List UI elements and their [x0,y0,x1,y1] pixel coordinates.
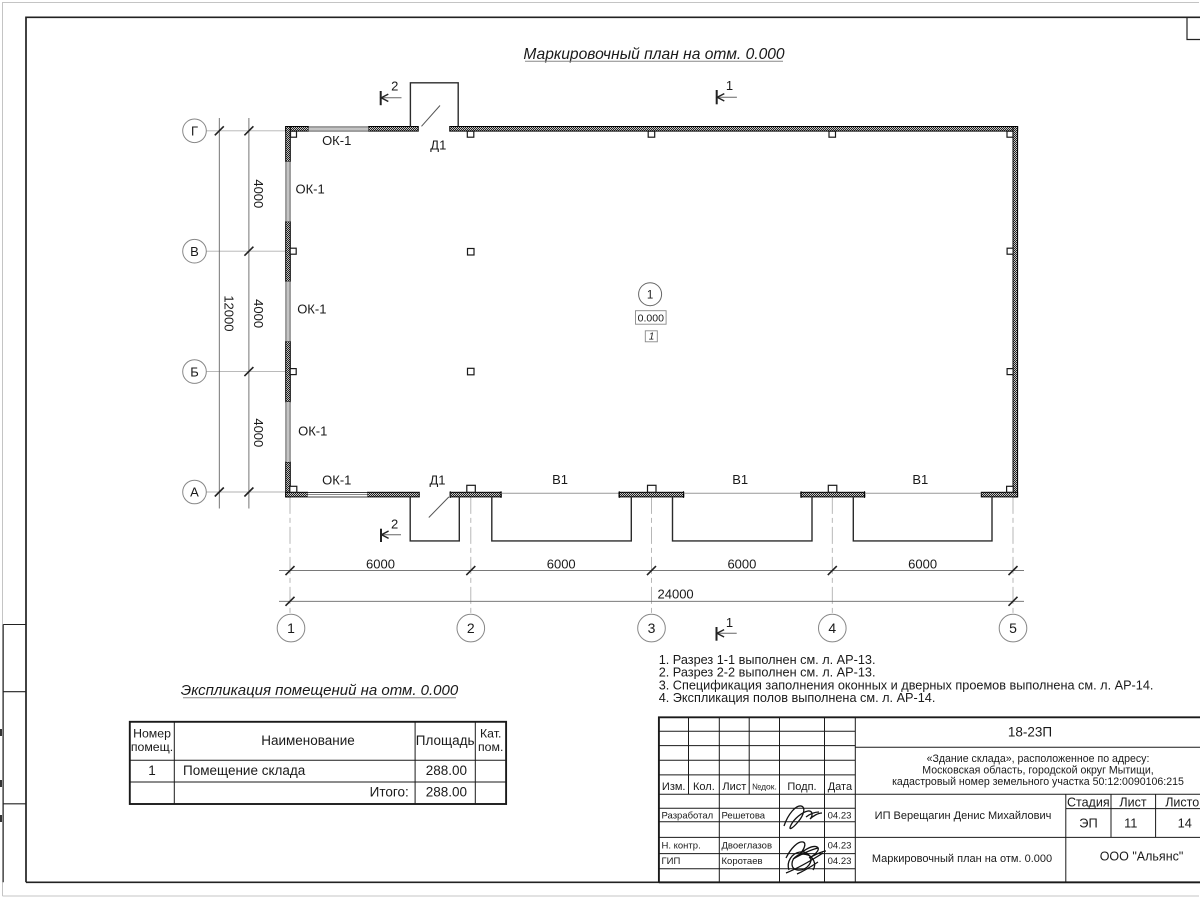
svg-text:04.23: 04.23 [828,856,852,867]
svg-text:«Здание склада», расположенное: «Здание склада», расположенное по адресу… [927,753,1150,765]
svg-text:1: 1 [649,332,655,343]
svg-text:пом.: пом. [478,740,503,754]
svg-text:Кат.: Кат. [480,727,501,741]
svg-text:2: 2 [391,79,398,94]
svg-text:Московская область, городской: Московская область, городской округ Мыти… [922,765,1153,777]
svg-text:1: 1 [148,763,156,778]
svg-text:3: 3 [648,620,656,636]
svg-text:4000: 4000 [251,299,266,328]
svg-text:ЭП: ЭП [1079,815,1097,830]
svg-text:04.23: 04.23 [828,811,852,822]
svg-text:В1: В1 [732,472,748,487]
svg-text:6000: 6000 [366,556,395,571]
svg-text:4000: 4000 [251,179,266,208]
svg-text:В1: В1 [912,472,928,487]
svg-text:24000: 24000 [658,587,694,602]
svg-text:№док.: №док. [752,781,777,791]
svg-text:Д1: Д1 [429,473,445,488]
svg-text:Лист: Лист [722,781,746,793]
svg-text:Листов: Листов [1165,795,1200,809]
svg-text:Д1: Д1 [430,138,446,153]
svg-text:ГИП: ГИП [662,856,681,867]
svg-text:6000: 6000 [727,556,756,571]
svg-text:Итого:: Итого: [370,785,409,800]
svg-text:Г: Г [191,124,198,139]
svg-text:Маркировочный план на отм. 0.0: Маркировочный план на отм. 0.000 [523,46,785,63]
svg-text:4: 4 [828,620,836,636]
svg-text:6000: 6000 [908,556,937,571]
svg-text:Дата: Дата [828,781,853,793]
svg-text:4000: 4000 [251,418,266,447]
svg-text:2: 2 [467,620,475,636]
svg-text:Изм.: Изм. [662,781,686,793]
svg-text:ОК-1: ОК-1 [322,473,351,488]
svg-text:5: 5 [1009,620,1017,636]
svg-text:288.00: 288.00 [426,785,467,800]
svg-text:кадастровый номер земельного у: кадастровый номер земельного участка 50:… [892,776,1184,788]
svg-text:0.000: 0.000 [638,312,664,324]
svg-text:ИП Верещагин Денис Михайлович: ИП Верещагин Денис Михайлович [875,810,1052,822]
svg-text:Площадь: Площадь [416,733,475,748]
svg-text:Б: Б [190,364,199,379]
svg-text:ООО "Альянс": ООО "Альянс" [1100,850,1184,864]
svg-text:Наименование: Наименование [261,733,355,748]
svg-text:Лист: Лист [1119,795,1146,809]
svg-text:Решетова: Решетова [722,811,766,822]
svg-text:4. Экспликация полов выполнена: 4. Экспликация полов выполнена см. л. АР… [659,691,936,705]
svg-text:Разработал: Разработал [662,811,714,822]
svg-text:1: 1 [647,290,653,302]
svg-text:288.00: 288.00 [426,763,467,778]
svg-text:Маркировочный план на отм. 0.0: Маркировочный план на отм. 0.000 [872,853,1052,865]
svg-text:ОК-1: ОК-1 [297,302,326,317]
svg-text:6000: 6000 [547,556,576,571]
svg-text:04.23: 04.23 [828,841,852,852]
svg-text:ОК-1: ОК-1 [298,424,327,439]
svg-text:А: А [190,485,199,500]
svg-text:2: 2 [391,516,398,531]
svg-text:1: 1 [726,78,733,93]
svg-text:Номер: Номер [133,727,171,741]
svg-text:Подп.: Подп. [787,781,816,793]
svg-text:Экспликация помещений на отм.: Экспликация помещений на отм. 0.000 [181,682,459,699]
svg-text:Двоеглазов: Двоеглазов [722,841,773,852]
svg-text:Помещение склада: Помещение склада [183,763,306,778]
svg-text:Кол.: Кол. [693,781,715,793]
svg-text:В1: В1 [552,472,568,487]
svg-text:Коротаев: Коротаев [722,856,763,867]
svg-text:18-23П: 18-23П [1008,725,1052,740]
svg-text:ОК-1: ОК-1 [322,133,351,148]
svg-text:1: 1 [287,620,295,636]
svg-text:Н. контр.: Н. контр. [662,841,701,852]
svg-text:помещ.: помещ. [131,740,173,754]
svg-text:ОК-1: ОК-1 [296,181,325,196]
svg-text:В: В [190,244,199,259]
svg-text:12000: 12000 [221,295,236,331]
svg-text:1: 1 [726,615,733,630]
svg-text:14: 14 [1178,815,1192,830]
svg-text:Стадия: Стадия [1067,795,1110,809]
svg-text:11: 11 [1124,815,1137,830]
